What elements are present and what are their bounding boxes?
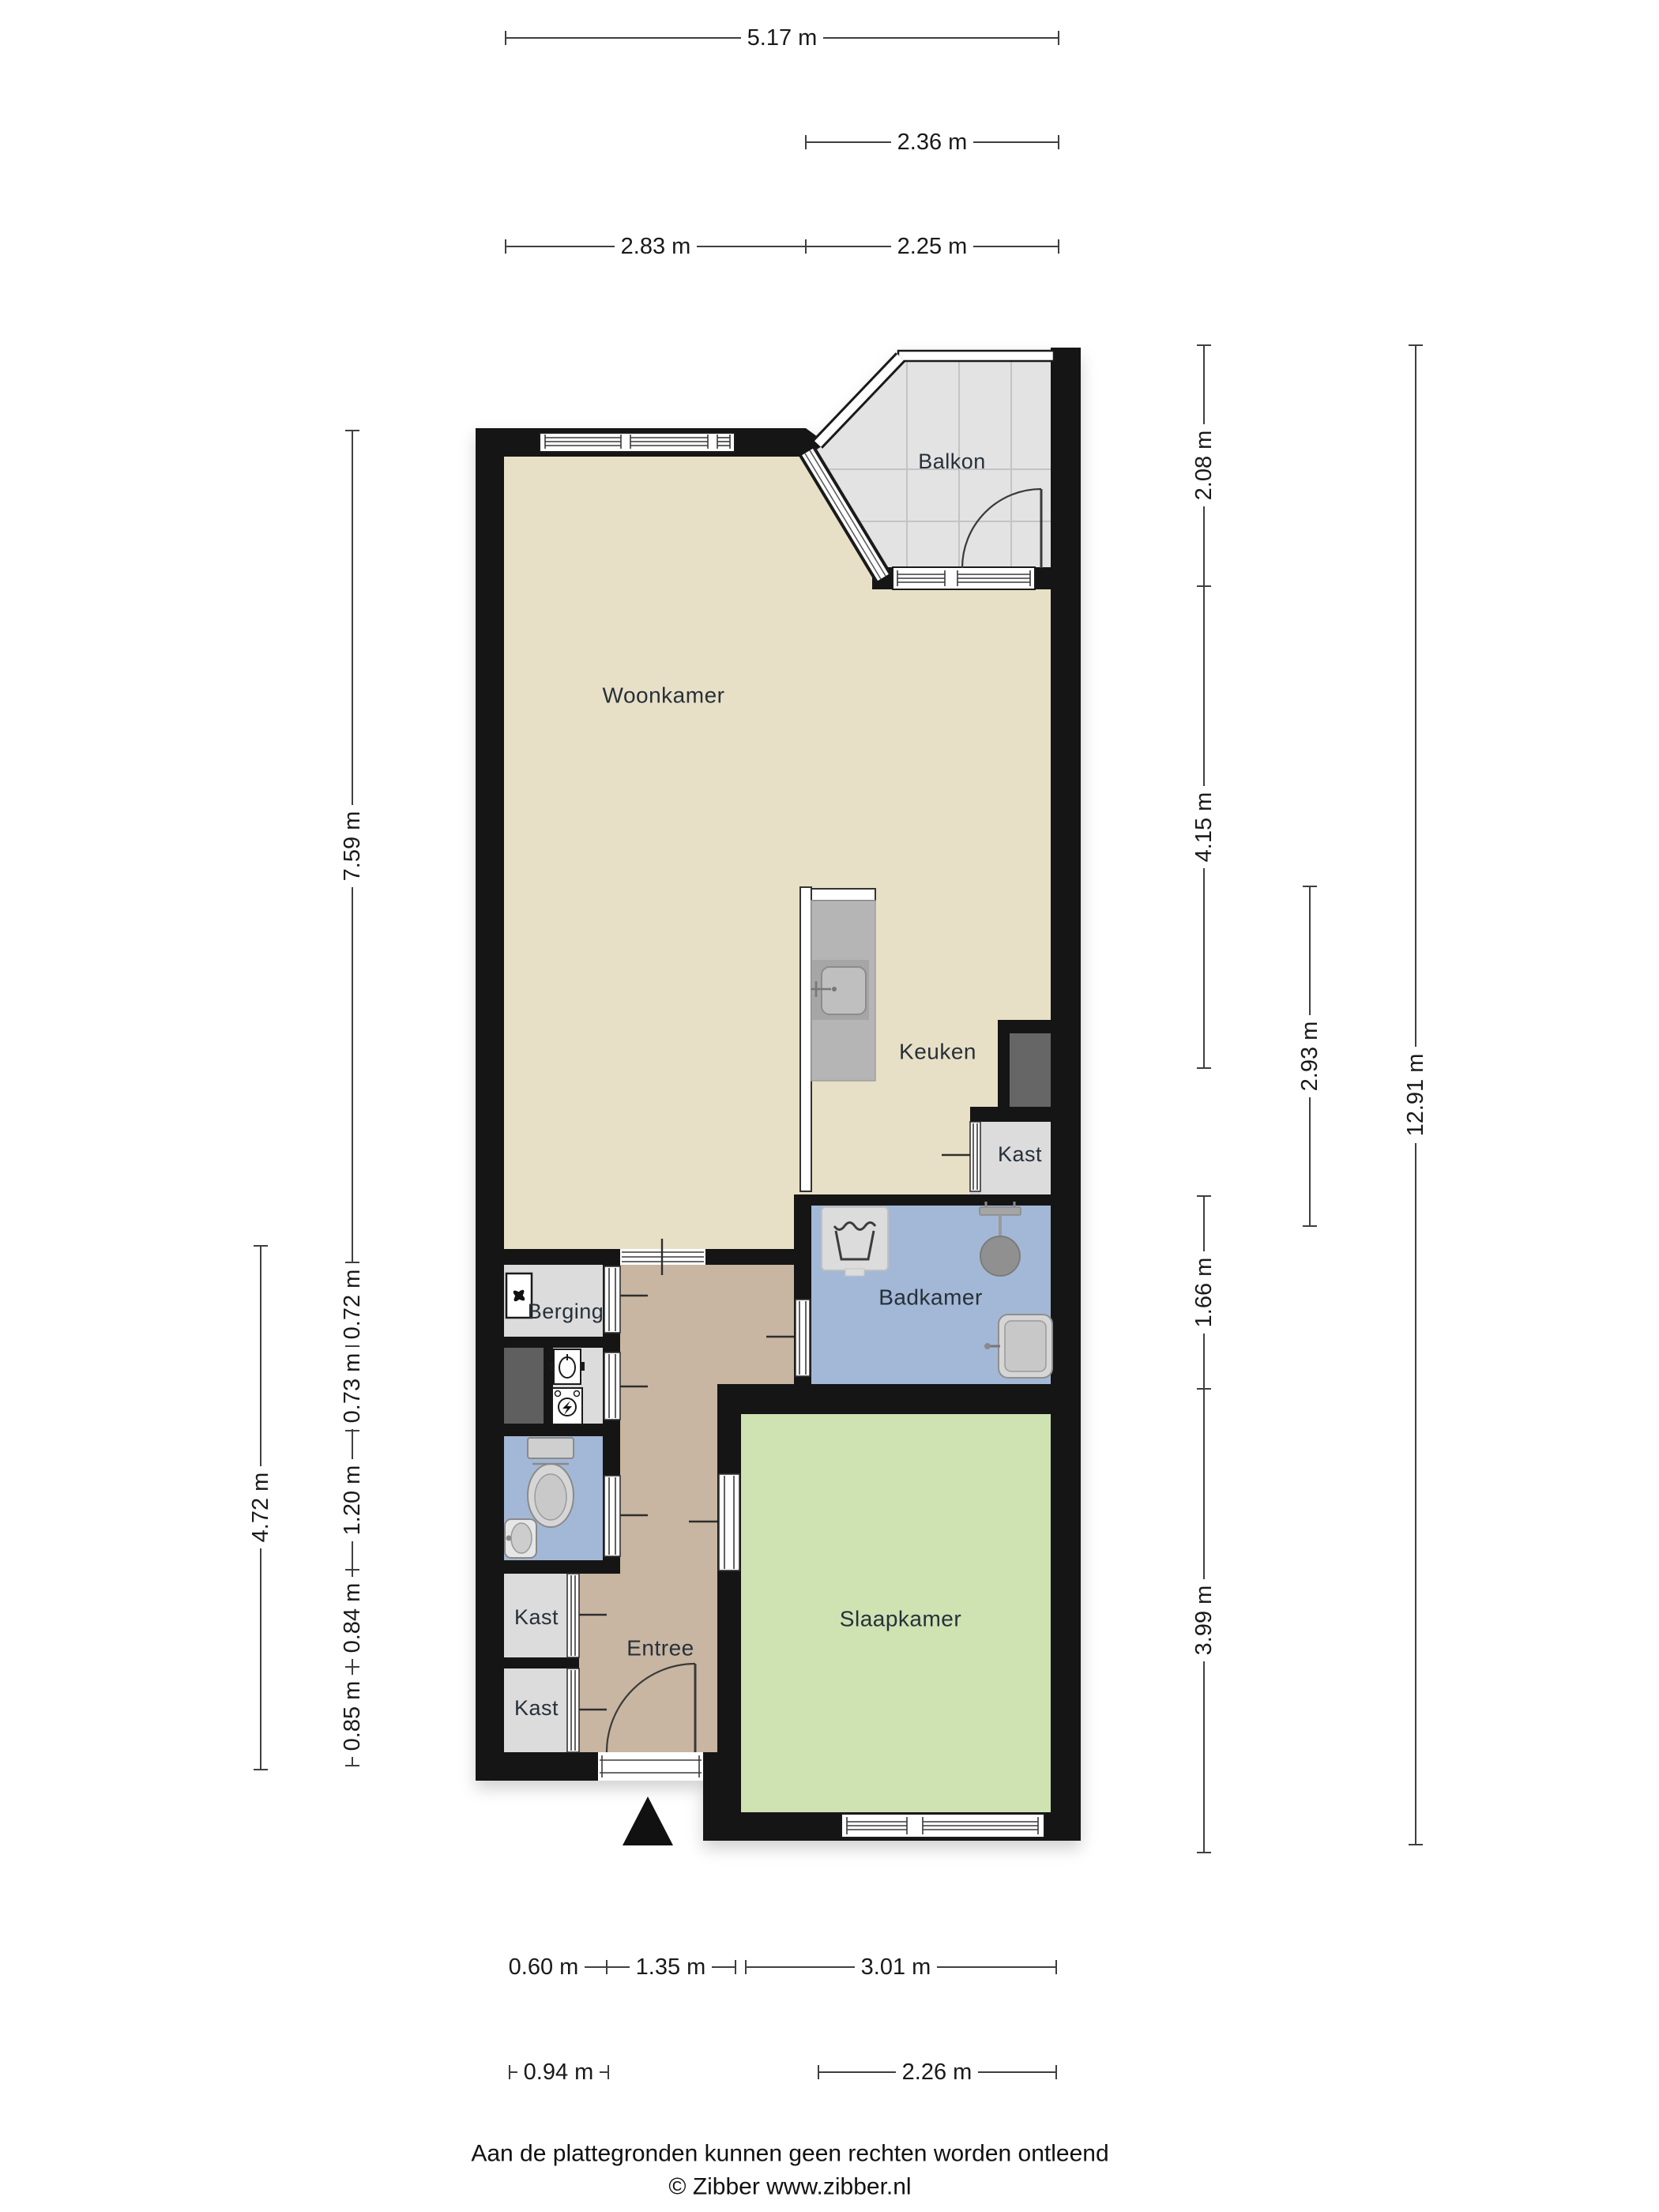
room-label-woonkamer: Woonkamer bbox=[603, 683, 725, 708]
window-slaapkamer-bottom bbox=[841, 1814, 1044, 1838]
dim-label: 0.94 m bbox=[524, 2060, 594, 2085]
water-meter-icon bbox=[550, 1349, 585, 1384]
room-label-kast-keuken: Kast bbox=[998, 1142, 1042, 1166]
kitchen-partition-cap bbox=[811, 889, 875, 901]
dim-label: 4.15 m bbox=[1191, 792, 1217, 863]
dim-top-balkon: 2.36 m bbox=[806, 130, 1059, 155]
dim-right-balkon: 2.08 m bbox=[1191, 345, 1217, 586]
room-label-badkamer: Badkamer bbox=[878, 1285, 983, 1310]
wall-toilet-bottom bbox=[504, 1560, 620, 1574]
dim-bottom-voordeur: 0.94 m bbox=[510, 2060, 608, 2085]
room-label-balkon: Balkon bbox=[918, 450, 986, 473]
wall-outer-left bbox=[476, 428, 504, 1781]
dim-label: 1.20 m bbox=[340, 1465, 365, 1536]
dim-label: 2.25 m bbox=[897, 234, 968, 259]
dim-right-slaapkamer: 3.99 m bbox=[1191, 1389, 1217, 1853]
dim-right-woonkamer: 4.15 m bbox=[1191, 586, 1217, 1068]
wall-berging-bottom bbox=[504, 1337, 620, 1348]
dim-label: 2.08 m bbox=[1191, 431, 1217, 501]
dim-left-woonkamer: 7.59 m bbox=[340, 431, 365, 1262]
dim-label: 0.84 m bbox=[340, 1583, 365, 1653]
dim-left-s3: 1.20 m bbox=[340, 1431, 365, 1570]
dim-label: 4.72 m bbox=[248, 1473, 273, 1543]
dim-label: 0.60 m bbox=[509, 1954, 579, 1980]
floor-plan-canvas: Woonkamer Balkon Keuken Kast Badkamer Be… bbox=[0, 0, 1659, 2212]
room-label-slaapkamer: Slaapkamer bbox=[840, 1607, 961, 1631]
window-woonkamer-top bbox=[540, 433, 735, 452]
dim-left-onder-totaal: 4.72 m bbox=[248, 1246, 273, 1770]
dim-bottom-entree: 1.35 m bbox=[607, 1954, 735, 1980]
wall-woonkamer-entree-right bbox=[705, 1249, 794, 1265]
toilet-icon bbox=[528, 1438, 574, 1527]
toilet-sink-icon bbox=[505, 1519, 536, 1558]
footer-disclaimer: Aan de plattegronden kunnen geen rechten… bbox=[471, 2141, 1108, 2167]
wall-outer-right bbox=[1051, 348, 1081, 1841]
dim-top-right: 2.25 m bbox=[806, 234, 1059, 259]
dim-right-keuken: 2.93 m bbox=[1297, 886, 1322, 1226]
dim-label: 1.66 m bbox=[1191, 1258, 1217, 1328]
shaft-left bbox=[504, 1348, 544, 1424]
dim-left-s1: 0.72 m bbox=[340, 1262, 365, 1346]
wall-meterkast-bottom bbox=[504, 1424, 620, 1436]
wall-kast-divider bbox=[504, 1657, 579, 1668]
room-label-kast-boven: Kast bbox=[514, 1605, 559, 1629]
wall-shaft-right-left bbox=[998, 1020, 1010, 1107]
room-label-keuken: Keuken bbox=[899, 1040, 976, 1064]
dim-left-s5: 0.85 m bbox=[340, 1667, 365, 1766]
kitchen-sink-icon bbox=[811, 960, 869, 1020]
dim-label: 0.85 m bbox=[340, 1681, 365, 1751]
dim-label: 0.73 m bbox=[340, 1353, 365, 1424]
balcony-railing bbox=[898, 351, 1054, 361]
dim-label: 1.35 m bbox=[636, 1954, 706, 1980]
footer-credit: © Zibber www.zibber.nl bbox=[668, 2174, 911, 2200]
floor-plan-svg: Woonkamer Balkon Keuken Kast Badkamer Be… bbox=[0, 0, 1659, 2212]
dim-label: 3.99 m bbox=[1191, 1586, 1217, 1656]
footer: Aan de plattegronden kunnen geen rechten… bbox=[471, 2141, 1108, 2200]
dim-label: 7.59 m bbox=[340, 811, 365, 882]
room-label-kast-onder: Kast bbox=[514, 1696, 559, 1720]
kitchen-partition-wall bbox=[800, 887, 811, 1191]
dim-label: 5.17 m bbox=[747, 25, 818, 51]
wall-woonkamer-entree-left bbox=[504, 1249, 620, 1265]
electricity-meter-icon bbox=[552, 1388, 582, 1424]
shaft-right bbox=[1010, 1033, 1051, 1107]
washing-machine-icon bbox=[822, 1207, 888, 1276]
dim-bottom-slaapkamer: 3.01 m bbox=[746, 1954, 1056, 1980]
dim-right-badkamer: 1.66 m bbox=[1191, 1196, 1217, 1389]
dim-right-total: 12.91 m bbox=[1403, 345, 1428, 1845]
wall-kast-keuken-top bbox=[970, 1107, 1051, 1122]
wall-badkamer-bottom bbox=[717, 1384, 1051, 1414]
dim-label: 2.36 m bbox=[897, 130, 968, 155]
dim-label: 2.93 m bbox=[1297, 1021, 1322, 1092]
room-label-berging: Berging bbox=[528, 1300, 604, 1323]
dim-label: 2.83 m bbox=[621, 234, 691, 259]
dim-top-total: 5.17 m bbox=[506, 25, 1059, 51]
dim-label: 3.01 m bbox=[861, 1954, 931, 1980]
dim-left-s4: 0.84 m bbox=[340, 1570, 365, 1667]
dim-label: 0.72 m bbox=[340, 1270, 365, 1340]
dim-label: 12.91 m bbox=[1403, 1054, 1428, 1137]
dim-label: 2.26 m bbox=[902, 2060, 972, 2085]
dim-bottom-raam: 2.26 m bbox=[818, 2060, 1056, 2085]
balcony-bottom-window bbox=[893, 567, 1035, 589]
dim-left-s2: 0.73 m bbox=[340, 1346, 365, 1431]
room-label-entree: Entree bbox=[626, 1636, 694, 1661]
entrance-arrow-icon bbox=[623, 1796, 673, 1845]
dim-bottom-kast: 0.60 m bbox=[502, 1954, 607, 1980]
dim-top-left: 2.83 m bbox=[506, 234, 806, 259]
